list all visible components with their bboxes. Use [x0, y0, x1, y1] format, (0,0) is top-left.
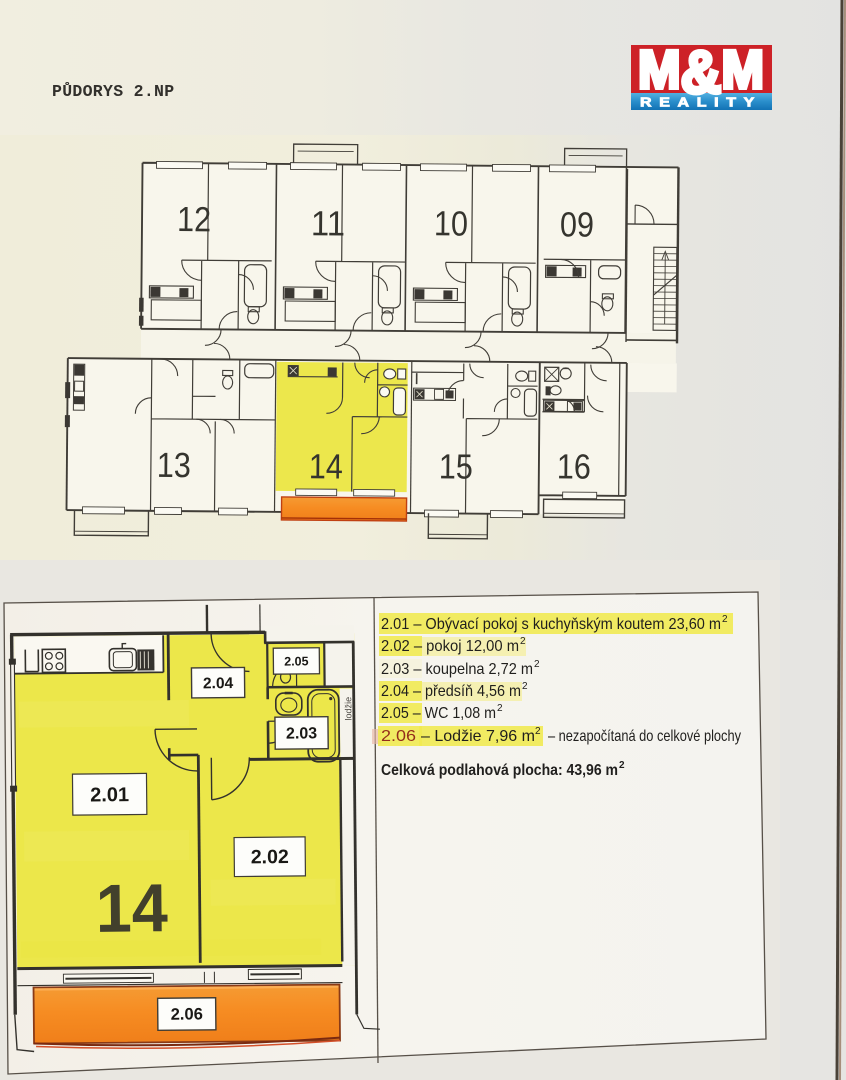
svg-text:2.01 – Obývací pokoj s kuchyňs: 2.01 – Obývací pokoj s kuchyňským koutem… — [381, 616, 721, 633]
svg-text:PŮDORYS 2.NP: PŮDORYS 2.NP — [52, 82, 174, 101]
svg-text:2.03 – koupelna 2,72 m: 2.03 – koupelna 2,72 m — [381, 661, 533, 678]
svg-text:REALITY: REALITY — [640, 96, 762, 110]
svg-text:2: 2 — [520, 636, 526, 647]
svg-text:2.05 – WC 1,08 m: 2.05 – WC 1,08 m — [381, 705, 496, 722]
svg-text:2: 2 — [535, 726, 541, 737]
svg-text:2: 2 — [722, 614, 728, 625]
svg-text:2.02 – pokoj 12,00 m: 2.02 – pokoj 12,00 m — [381, 638, 519, 655]
svg-text:2.04: 2.04 — [203, 675, 234, 692]
svg-text:lodžie: lodžie — [343, 697, 353, 721]
svg-text:13: 13 — [157, 446, 191, 485]
svg-text:2.05: 2.05 — [284, 654, 309, 668]
svg-text:2.04 – předsíň 4,56 m: 2.04 – předsíň 4,56 m — [381, 683, 521, 700]
svg-text:10: 10 — [434, 204, 468, 243]
svg-text:– Lodžie 7,96 m: – Lodžie 7,96 m — [421, 728, 535, 745]
svg-text:14: 14 — [309, 447, 343, 486]
svg-text:2: 2 — [522, 681, 528, 692]
svg-text:15: 15 — [439, 447, 473, 486]
svg-text:2.01: 2.01 — [90, 784, 129, 806]
svg-text:2.03: 2.03 — [286, 725, 317, 742]
svg-text:2: 2 — [497, 703, 503, 714]
svg-text:16: 16 — [557, 447, 591, 486]
svg-text:09: 09 — [560, 205, 594, 244]
svg-text:14: 14 — [95, 870, 168, 947]
svg-text:2: 2 — [534, 659, 540, 670]
svg-text:11: 11 — [311, 204, 345, 243]
svg-text:– nezapočítaná do celkové ploc: – nezapočítaná do celkové plochy — [548, 728, 741, 745]
svg-text:2: 2 — [619, 760, 625, 771]
svg-text:Celková podlahová plocha: 43,9: Celková podlahová plocha: 43,96 m — [381, 762, 618, 779]
svg-text:2.06: 2.06 — [171, 1005, 203, 1023]
svg-text:2.02: 2.02 — [251, 846, 289, 868]
svg-text:12: 12 — [177, 200, 211, 239]
svg-text:2.06: 2.06 — [381, 728, 416, 745]
